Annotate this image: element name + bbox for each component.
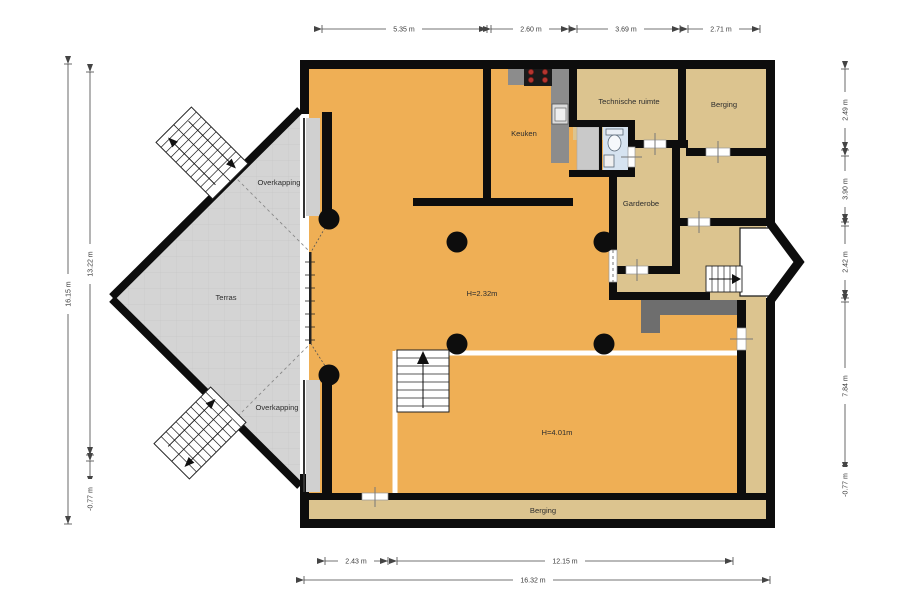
- dim-bottom-1: 2.43 m: [345, 559, 367, 566]
- dim-top-1: 5.35 m: [393, 27, 415, 34]
- corridor-floor: [746, 300, 766, 493]
- wall-berging-top-bottom: [686, 148, 775, 156]
- wall-glazing-lower: [322, 380, 332, 493]
- glazing-lower: [306, 380, 320, 492]
- dim-top-2: 2.60 m: [520, 27, 542, 34]
- dim-left-total: 16.15 m: [63, 274, 73, 314]
- dim-bottom-total: 16.32 m: [520, 578, 545, 585]
- column-dot: [319, 209, 340, 230]
- svg-text:-0.77 m: -0.77 m: [843, 473, 850, 497]
- wall-top: [300, 60, 775, 69]
- toilet-tank: [606, 129, 623, 135]
- wall-toilet-top: [569, 120, 635, 127]
- room-label-berging-top: Berging: [711, 100, 737, 109]
- svg-text:2.42 m: 2.42 m: [843, 251, 850, 273]
- glazing-upper: [306, 118, 320, 216]
- burner-icon: [542, 69, 547, 74]
- column-dot: [319, 365, 340, 386]
- wall-garderobe-right: [672, 148, 680, 274]
- sliding-door-line: [309, 252, 312, 344]
- svg-text:7.84 m: 7.84 m: [843, 375, 850, 397]
- room-label-terras: Terras: [215, 293, 236, 302]
- room-label-overkapping-top: Overkapping: [257, 178, 300, 187]
- room-label-garderobe: Garderobe: [623, 199, 659, 208]
- room-label-technische-ruimte: Technische ruimte: [598, 97, 659, 106]
- wall-kitchen-bottom: [413, 198, 573, 206]
- dim-right-5: -0.77 m: [840, 467, 850, 503]
- dim-top-3: 3.69 m: [615, 27, 637, 34]
- wall-toilet-bottom: [569, 170, 635, 177]
- closet: [577, 127, 599, 170]
- door-garderobe-side: [609, 250, 617, 282]
- kitchen-sink-basin: [555, 108, 566, 121]
- column-dot: [447, 334, 468, 355]
- dim-right-1: 2.49 m: [840, 92, 850, 128]
- room-label-keuken: Keuken: [511, 129, 537, 138]
- dim-left-lower: -0.77 m: [85, 479, 95, 519]
- column-dot: [594, 334, 615, 355]
- wall-toilet-internal: [599, 127, 602, 170]
- burner-icon: [528, 69, 533, 74]
- svg-text:2.49 m: 2.49 m: [843, 99, 850, 121]
- glazing-line-lower: [303, 380, 305, 492]
- height-label-hall: H=4.01m: [541, 428, 572, 437]
- wall-kitchen-tr: [569, 60, 577, 127]
- floor-plan-svg: Keuken Technische ruimte Berging Gardero…: [0, 0, 900, 600]
- wall-right-upper: [766, 60, 775, 226]
- svg-text:13.22 m: 13.22 m: [88, 251, 95, 276]
- burner-icon: [528, 77, 533, 82]
- column-dot: [594, 232, 615, 253]
- room-label-berging-bottom: Berging: [530, 506, 556, 515]
- wall-right-lower: [766, 298, 775, 528]
- wall-bottom: [300, 519, 775, 528]
- dim-right-3: 2.42 m: [840, 244, 850, 280]
- glazing-line-upper: [303, 118, 305, 218]
- wall-hall-bottom: [609, 292, 710, 300]
- svg-text:16.15 m: 16.15 m: [66, 281, 73, 306]
- wall-kitchen-left: [483, 60, 491, 206]
- bathroom-sink: [604, 155, 614, 167]
- floor-plan-page: Keuken Technische ruimte Berging Gardero…: [0, 0, 900, 600]
- wall-glazing-upper: [322, 112, 332, 219]
- stairs-entry: [706, 266, 742, 292]
- entrance-bay: [740, 223, 799, 301]
- dim-bottom-2: 12.15 m: [552, 559, 577, 566]
- stairs-main: [397, 350, 449, 412]
- wall-left-upper: [300, 60, 309, 114]
- dim-right-4: 7.84 m: [840, 368, 850, 404]
- svg-text:-0.77 m: -0.77 m: [88, 487, 95, 511]
- dim-top-4: 2.71 m: [710, 27, 732, 34]
- svg-text:3.90 m: 3.90 m: [843, 178, 850, 200]
- height-label-living: H=2.32m: [466, 289, 497, 298]
- dim-right-2: 3.90 m: [840, 171, 850, 207]
- column-dot: [447, 232, 468, 253]
- wall-tr-right: [678, 60, 686, 148]
- burner-icon: [542, 77, 547, 82]
- toilet-icon: [608, 135, 621, 151]
- room-label-overkapping-bottom: Overkapping: [255, 403, 298, 412]
- dim-left-upper: 13.22 m: [85, 244, 95, 284]
